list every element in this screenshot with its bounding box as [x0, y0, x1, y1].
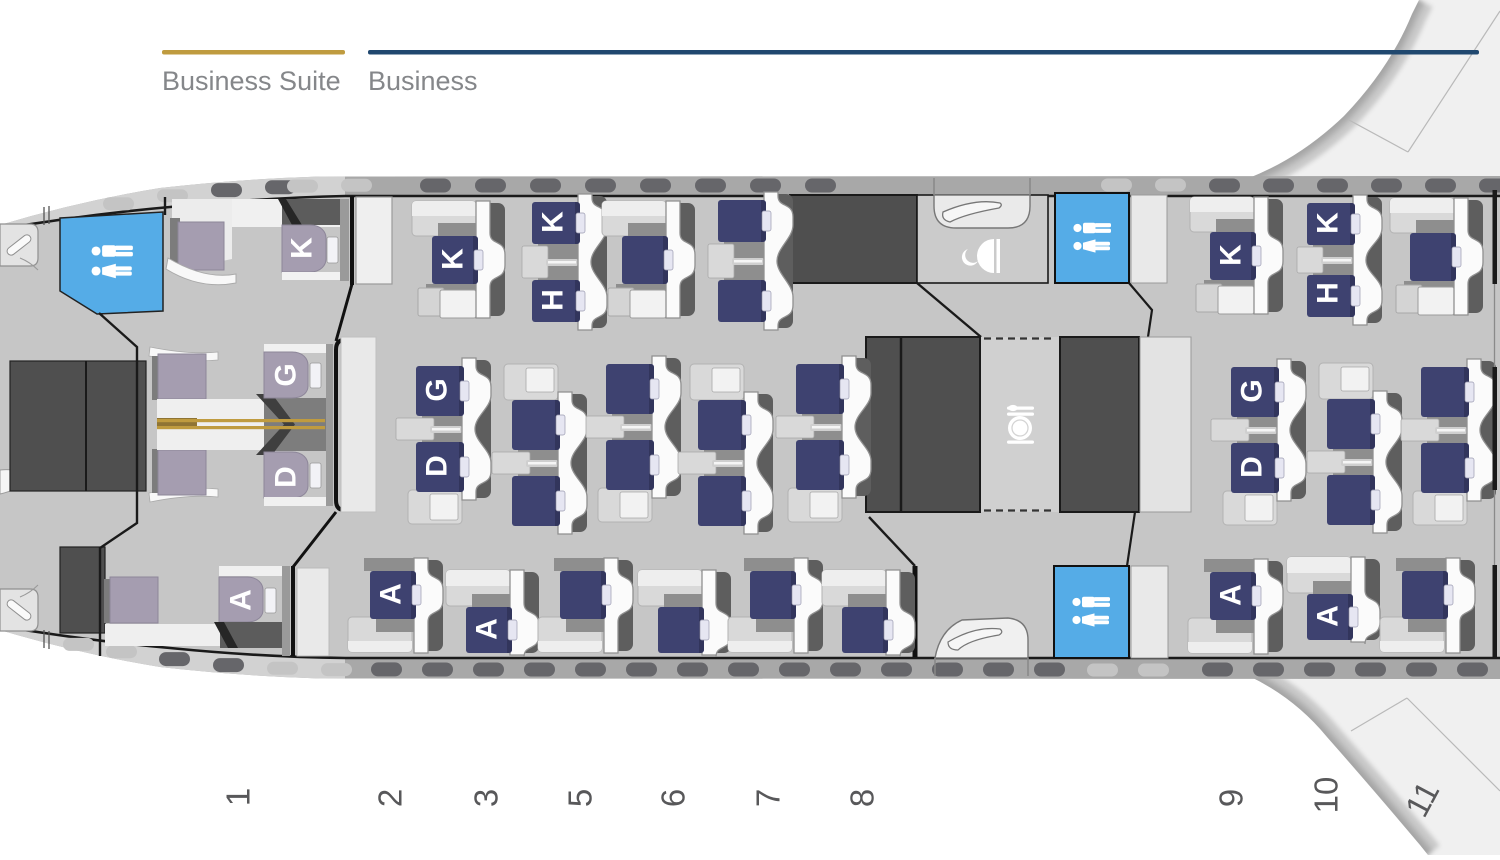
svg-text:8: 8 [844, 789, 881, 807]
svg-text:A: A [375, 583, 408, 605]
svg-text:K: K [1312, 212, 1345, 234]
svg-text:H: H [1312, 282, 1345, 304]
svg-text:Business Suite: Business Suite [162, 66, 341, 96]
svg-text:9: 9 [1213, 789, 1250, 807]
svg-text:D: D [270, 466, 303, 488]
svg-text:6: 6 [655, 789, 692, 807]
svg-text:A: A [471, 618, 504, 640]
svg-text:G: G [421, 378, 454, 401]
svg-text:K: K [1215, 244, 1248, 266]
svg-text:A: A [225, 589, 258, 611]
svg-text:Business: Business [368, 66, 478, 96]
svg-text:10: 10 [1308, 777, 1345, 814]
svg-text:A: A [1215, 584, 1248, 606]
svg-text:1: 1 [220, 788, 257, 806]
svg-text:D: D [421, 455, 454, 477]
svg-text:7: 7 [750, 789, 787, 807]
svg-text:3: 3 [468, 789, 505, 807]
svg-text:G: G [1236, 379, 1269, 402]
svg-text:H: H [537, 289, 570, 311]
svg-text:D: D [1236, 456, 1269, 478]
svg-text:A: A [1312, 605, 1345, 627]
svg-text:K: K [537, 211, 570, 233]
svg-text:K: K [286, 237, 319, 259]
svg-text:5: 5 [562, 789, 599, 807]
svg-text:G: G [270, 363, 303, 386]
svg-text:K: K [437, 248, 470, 270]
svg-text:2: 2 [372, 789, 409, 807]
